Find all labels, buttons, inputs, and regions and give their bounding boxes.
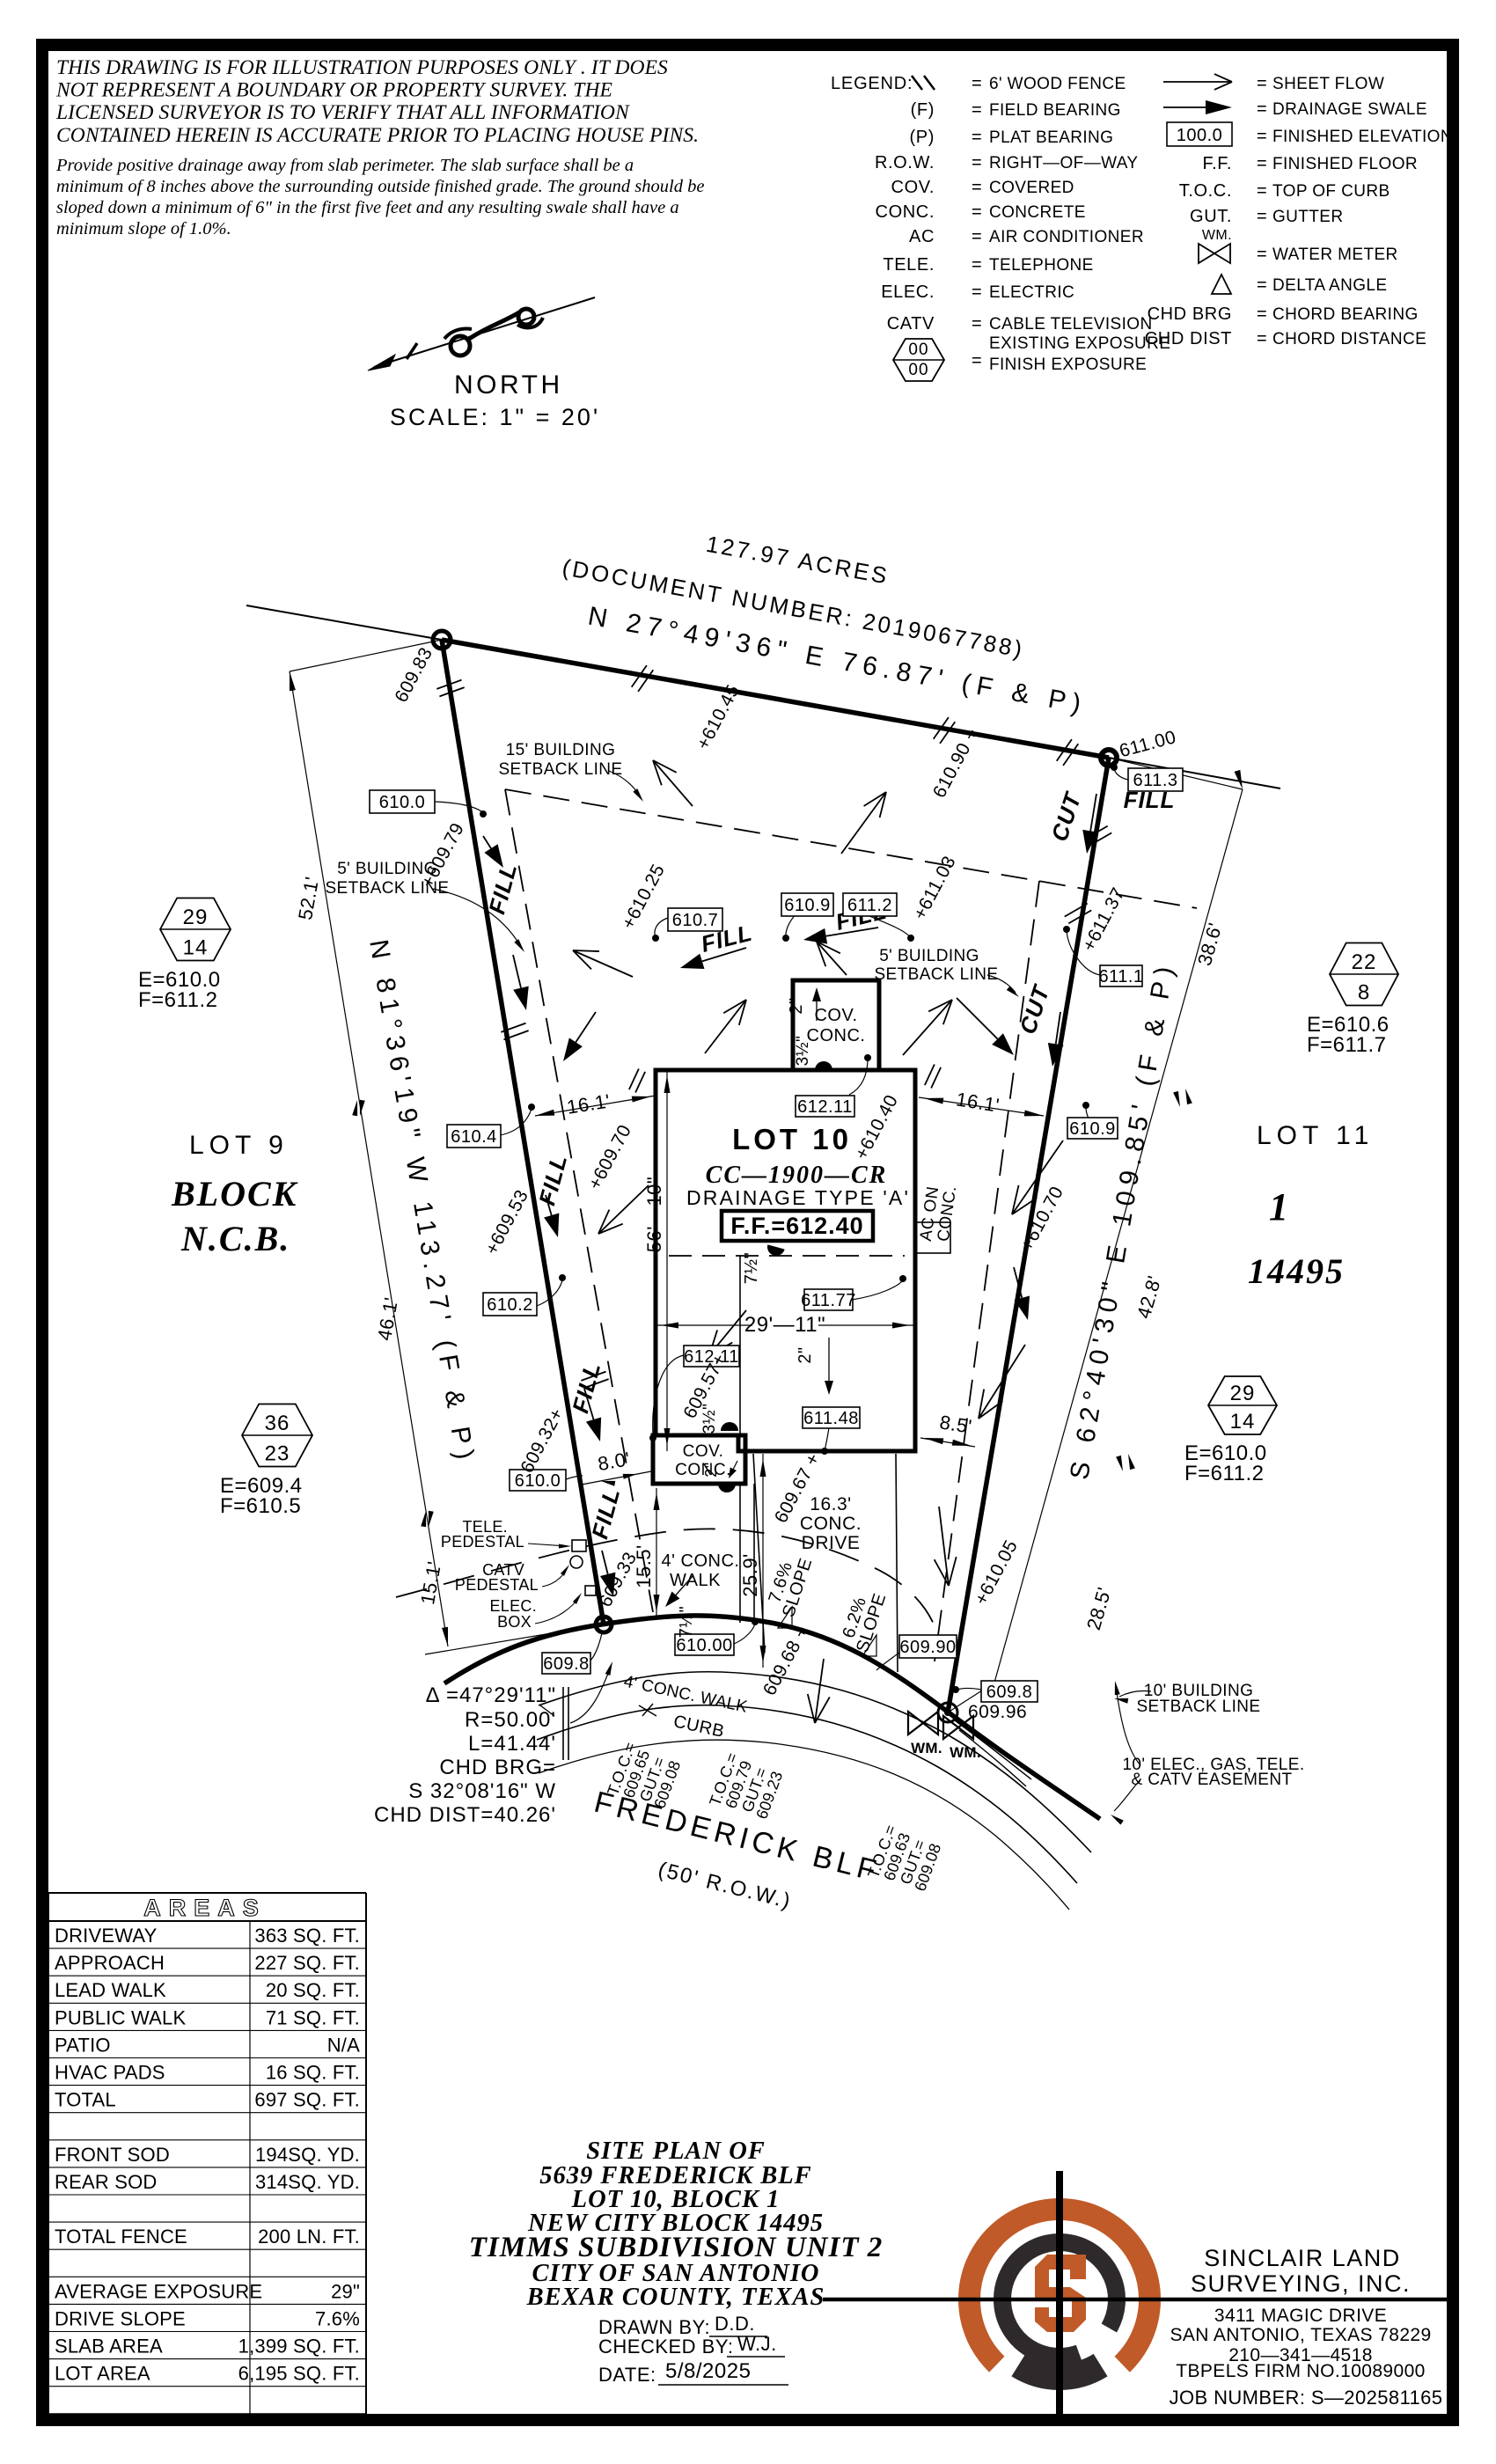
svg-text:610.9: 610.9: [784, 896, 831, 915]
svg-text:4' CONC.: 4' CONC.: [662, 1551, 740, 1571]
svg-text:CATV: CATV: [887, 314, 935, 334]
svg-text:TOP OF CURB: TOP OF CURB: [1272, 182, 1390, 201]
svg-text:23: 23: [265, 1442, 290, 1466]
svg-text:SURVEYING, INC.: SURVEYING, INC.: [1191, 2270, 1411, 2297]
svg-text:& CATV EASEMENT: & CATV EASEMENT: [1131, 1771, 1292, 1789]
svg-text:22: 22: [1352, 950, 1377, 974]
svg-text:PATIO: PATIO: [55, 2034, 111, 2056]
svg-text:SHEET FLOW: SHEET FLOW: [1272, 75, 1384, 93]
svg-text:LICENSED SURVEYOR IS TO VERIFY: LICENSED SURVEYOR IS TO VERIFY THAT ALL …: [55, 101, 630, 124]
svg-text:SETBACK LINE: SETBACK LINE: [325, 879, 449, 898]
svg-text:F=611.2: F=611.2: [1184, 1462, 1264, 1485]
svg-text:D.D.: D.D.: [715, 2313, 755, 2335]
svg-text:14: 14: [1230, 1410, 1256, 1434]
svg-text:TIMMS SUBDIVISION UNIT 2: TIMMS SUBDIVISION UNIT 2: [469, 2232, 884, 2263]
svg-text:609.90: 609.90: [899, 1638, 956, 1657]
svg-text:PEDESTAL: PEDESTAL: [441, 1533, 524, 1551]
svg-text:GUT.: GUT.: [1190, 207, 1232, 226]
svg-text:DELTA ANGLE: DELTA ANGLE: [1272, 276, 1387, 295]
svg-text:609.96: 609.96: [968, 1702, 1027, 1722]
svg-text:N.C.B.: N.C.B.: [180, 1219, 290, 1258]
svg-text:CONC.: CONC.: [800, 1514, 862, 1534]
svg-text:CHORD DISTANCE: CHORD DISTANCE: [1272, 330, 1426, 348]
svg-text:CHD BRG: CHD BRG: [1148, 304, 1232, 324]
svg-text:FINISHED ELEVATION: FINISHED ELEVATION: [1272, 128, 1453, 146]
svg-text:8: 8: [1358, 981, 1370, 1005]
svg-text:1: 1: [1269, 1185, 1290, 1228]
svg-text:DRIVE SLOPE: DRIVE SLOPE: [55, 2307, 186, 2329]
svg-text:36: 36: [265, 1412, 290, 1435]
svg-text:CONTAINED HEREIN IS ACCURATE P: CONTAINED HEREIN IS ACCURATE PRIOR TO PL…: [56, 124, 699, 147]
svg-text:WM.: WM.: [950, 1744, 981, 1761]
svg-text:(P): (P): [910, 128, 935, 147]
svg-text:=: =: [1257, 329, 1267, 348]
svg-text:WATER METER: WATER METER: [1272, 246, 1398, 264]
svg-text:CHD DIST=40.26': CHD DIST=40.26': [374, 1803, 556, 1827]
svg-text:14495: 14495: [1248, 1251, 1345, 1291]
svg-text:NOT REPRESENT A BOUNDARY OR PR: NOT REPRESENT A BOUNDARY OR PROPERTY SUR…: [55, 79, 612, 102]
svg-text:6,195 SQ. FT.: 6,195 SQ. FT.: [238, 2363, 360, 2385]
svg-text:194SQ. YD.: 194SQ. YD.: [255, 2144, 360, 2166]
svg-text:T.O.C.: T.O.C.: [1179, 181, 1232, 201]
svg-text:7½": 7½": [677, 1606, 696, 1638]
svg-text:L=41.44': L=41.44': [468, 1732, 556, 1756]
svg-text:SETBACK LINE: SETBACK LINE: [1136, 1698, 1260, 1716]
svg-text:610.2: 610.2: [487, 1295, 533, 1315]
svg-text:PUBLIC WALK: PUBLIC WALK: [55, 2006, 186, 2028]
svg-text:=: =: [1257, 99, 1267, 119]
svg-text:sloped down a minimum of 6" in: sloped down a minimum of 6" in the first…: [56, 198, 679, 217]
svg-text:SITE PLAN OF: SITE PLAN OF: [586, 2138, 766, 2165]
svg-text:29: 29: [1230, 1382, 1256, 1405]
svg-text:2": 2": [702, 1462, 720, 1477]
svg-text:=: =: [1257, 207, 1267, 226]
svg-text:7.6%: 7.6%: [315, 2307, 360, 2329]
svg-text:CONCRETE: CONCRETE: [989, 203, 1086, 222]
svg-text:6' WOOD FENCE: 6' WOOD FENCE: [989, 75, 1126, 93]
svg-text:JOB NUMBER: S—202581165: JOB NUMBER: S—202581165: [1170, 2387, 1443, 2409]
svg-text:F=611.7: F=611.7: [1307, 1033, 1386, 1057]
svg-text:612.11: 612.11: [797, 1097, 853, 1117]
svg-text:AIR CONDITIONER: AIR CONDITIONER: [989, 228, 1144, 246]
svg-text:=: =: [972, 74, 982, 93]
svg-text:=: =: [972, 282, 982, 302]
svg-text:N/A: N/A: [327, 2034, 360, 2056]
svg-text:FRONT SOD: FRONT SOD: [55, 2144, 170, 2166]
svg-text:CONC.: CONC.: [876, 202, 935, 222]
svg-text:2": 2": [787, 997, 806, 1014]
svg-text:LEGEND:: LEGEND:: [831, 74, 913, 93]
svg-text:COVERED: COVERED: [989, 179, 1074, 197]
svg-text:SINCLAIR LAND: SINCLAIR LAND: [1204, 2245, 1401, 2271]
svg-text:3411 MAGIC DRIVE: 3411 MAGIC DRIVE: [1214, 2306, 1387, 2326]
svg-text:BEXAR COUNTY, TEXAS: BEXAR COUNTY, TEXAS: [526, 2284, 825, 2311]
svg-text:NORTH: NORTH: [454, 370, 563, 400]
svg-text:RIGHT—OF—WAY: RIGHT—OF—WAY: [989, 154, 1138, 172]
svg-text:ELECTRIC: ELECTRIC: [989, 283, 1074, 302]
svg-text:LOT 11: LOT 11: [1257, 1121, 1374, 1150]
svg-text:1,399 SQ. FT.: 1,399 SQ. FT.: [238, 2336, 360, 2358]
svg-text:DRIVE: DRIVE: [802, 1533, 861, 1553]
svg-text:200 LN. FT.: 200 LN. FT.: [258, 2226, 360, 2248]
svg-text:AVERAGE EXPOSURE: AVERAGE EXPOSURE: [55, 2280, 262, 2302]
svg-text:DRAINAGE SWALE: DRAINAGE SWALE: [1272, 100, 1427, 119]
svg-text:THIS DRAWING IS FOR ILLUSTRATI: THIS DRAWING IS FOR ILLUSTRATION PURPOSE…: [56, 56, 668, 79]
svg-text:=: =: [972, 153, 982, 172]
svg-text:FINISH EXPOSURE: FINISH EXPOSURE: [989, 356, 1147, 374]
svg-text:610.0: 610.0: [379, 793, 426, 812]
svg-text:611.1: 611.1: [1098, 967, 1143, 986]
svg-text:20 SQ. FT.: 20 SQ. FT.: [266, 1979, 360, 2001]
svg-text:=: =: [1257, 154, 1267, 173]
svg-text:00: 00: [908, 341, 928, 359]
svg-text:7½": 7½": [742, 1252, 761, 1284]
svg-text:CHECKED BY:: CHECKED BY:: [598, 2336, 733, 2358]
svg-text:610.7: 610.7: [672, 911, 719, 930]
svg-text:BLOCK: BLOCK: [171, 1174, 298, 1214]
svg-text:CHD BRG=: CHD BRG=: [439, 1756, 556, 1779]
svg-text:AC: AC: [909, 227, 935, 246]
svg-text:FIELD BEARING: FIELD BEARING: [989, 101, 1121, 120]
svg-text:15' BUILDING: 15' BUILDING: [506, 741, 616, 759]
svg-text:=: =: [972, 227, 982, 246]
svg-text:LEAD WALK: LEAD WALK: [55, 1979, 166, 2001]
svg-text:=: =: [972, 314, 982, 334]
svg-text:SETBACK LINE: SETBACK LINE: [498, 760, 622, 779]
svg-text:TOTAL: TOTAL: [55, 2089, 116, 2111]
svg-text:TELEPHONE: TELEPHONE: [989, 256, 1094, 275]
svg-text:5' BUILDING: 5' BUILDING: [337, 860, 437, 878]
svg-text:CONC.: CONC.: [807, 1026, 866, 1045]
svg-text:609.8: 609.8: [543, 1654, 590, 1674]
svg-text:=: =: [1257, 181, 1267, 201]
svg-text:314SQ. YD.: 314SQ. YD.: [255, 2171, 360, 2193]
svg-text:=: =: [972, 255, 982, 275]
svg-text:TELE.: TELE.: [883, 255, 935, 275]
svg-text:611.48: 611.48: [803, 1409, 859, 1428]
svg-text:BOX: BOX: [497, 1613, 532, 1631]
svg-text:=: =: [1257, 304, 1267, 324]
svg-text:S 32°08'16" W: S 32°08'16" W: [408, 1779, 556, 1803]
svg-text:minimum of 8 inches above the: minimum of 8 inches above the surroundin…: [56, 177, 704, 196]
svg-text:R.O.W.: R.O.W.: [875, 153, 935, 172]
svg-text:SETBACK LINE: SETBACK LINE: [874, 965, 998, 984]
svg-text:DRIVEWAY: DRIVEWAY: [55, 1925, 158, 1947]
svg-text:W.J.: W.J.: [737, 2333, 777, 2355]
svg-text:2": 2": [796, 1346, 815, 1363]
svg-text:29: 29: [183, 906, 209, 929]
svg-text:=: =: [1257, 74, 1267, 93]
svg-text:=: =: [1257, 245, 1267, 264]
svg-text:CABLE TELEVISION: CABLE TELEVISION: [989, 315, 1153, 334]
svg-text:=: =: [972, 100, 982, 120]
svg-text:CHORD BEARING: CHORD BEARING: [1272, 305, 1419, 324]
svg-text:ELEC.: ELEC.: [489, 1597, 537, 1615]
svg-text:LOT 10: LOT 10: [732, 1123, 852, 1155]
svg-text:F=610.5: F=610.5: [220, 1494, 301, 1518]
svg-text:00: 00: [908, 361, 928, 379]
svg-text:F.F.=612.40: F.F.=612.40: [730, 1213, 863, 1239]
svg-text:609.8: 609.8: [986, 1683, 1033, 1702]
svg-text:697 SQ. FT.: 697 SQ. FT.: [254, 2089, 360, 2111]
svg-text:TOTAL FENCE: TOTAL FENCE: [55, 2226, 187, 2248]
svg-text:=: =: [972, 178, 982, 197]
svg-text:F.F.: F.F.: [1202, 154, 1232, 173]
svg-text:COV.: COV.: [891, 178, 935, 197]
svg-text:=: =: [1257, 127, 1267, 146]
svg-text:COV.: COV.: [683, 1442, 724, 1461]
svg-text:5/8/2025: 5/8/2025: [665, 2359, 751, 2383]
svg-text:minimum slope of 1.0%.: minimum slope of 1.0%.: [56, 219, 231, 238]
svg-text:610.9: 610.9: [1069, 1119, 1116, 1139]
svg-text:610.00: 610.00: [676, 1636, 732, 1655]
svg-text:3½": 3½": [794, 1036, 812, 1067]
svg-text:AREAS: AREAS: [143, 1895, 267, 1921]
svg-text:=: =: [972, 351, 982, 370]
svg-text:WM.: WM.: [1202, 228, 1232, 243]
svg-text:F=611.2: F=611.2: [138, 988, 217, 1012]
svg-text:3½": 3½": [700, 1404, 719, 1434]
svg-text:EXISTING EXPOSURE: EXISTING EXPOSURE: [989, 334, 1170, 353]
svg-text:Δ =47°29'11": Δ =47°29'11": [426, 1683, 556, 1707]
svg-text:ELEC.: ELEC.: [881, 282, 935, 302]
svg-text:DATE:: DATE:: [598, 2364, 656, 2386]
svg-text:COV.: COV.: [814, 1006, 857, 1025]
svg-text:WALK: WALK: [670, 1571, 721, 1590]
svg-text:610.4: 610.4: [451, 1127, 497, 1147]
svg-text:GUTTER: GUTTER: [1272, 208, 1344, 226]
svg-text:227 SQ. FT.: 227 SQ. FT.: [254, 1952, 360, 1974]
svg-text:HVAC PADS: HVAC PADS: [55, 2062, 165, 2084]
svg-text:611.2: 611.2: [847, 896, 892, 915]
svg-text:SCALE: 1" = 20': SCALE: 1" = 20': [390, 404, 600, 430]
svg-text:=: =: [972, 128, 982, 147]
svg-text:APPROACH: APPROACH: [55, 1952, 165, 1974]
svg-text:FINISHED FLOOR: FINISHED FLOOR: [1272, 155, 1418, 173]
svg-text:Provide positive drainage away: Provide positive drainage away from slab…: [55, 156, 634, 175]
svg-text:REAR SOD: REAR SOD: [55, 2171, 158, 2193]
svg-text:=: =: [1257, 275, 1267, 295]
svg-text:29'—11": 29'—11": [744, 1313, 825, 1337]
svg-text:WM.: WM.: [911, 1740, 942, 1756]
svg-text:LOT 9: LOT 9: [189, 1131, 289, 1160]
svg-text:71 SQ. FT.: 71 SQ. FT.: [266, 2006, 360, 2028]
svg-text:611.3: 611.3: [1133, 771, 1177, 790]
svg-text:=: =: [972, 202, 982, 222]
svg-text:SLAB AREA: SLAB AREA: [55, 2336, 163, 2358]
svg-text:611.77: 611.77: [801, 1291, 856, 1310]
svg-text:TBPELS FIRM NO.10089000: TBPELS FIRM NO.10089000: [1176, 2361, 1426, 2381]
svg-text:PLAT BEARING: PLAT BEARING: [989, 128, 1113, 147]
svg-text:PEDESTAL: PEDESTAL: [455, 1576, 539, 1594]
svg-text:363 SQ. FT.: 363 SQ. FT.: [254, 1925, 360, 1947]
svg-text:16.3': 16.3': [810, 1494, 851, 1514]
svg-text:25.9': 25.9': [739, 1553, 761, 1597]
svg-text:LOT AREA: LOT AREA: [55, 2363, 150, 2385]
svg-text:(F): (F): [911, 100, 935, 120]
svg-text:CC—1900—CR: CC—1900—CR: [706, 1162, 888, 1189]
svg-text:610.0: 610.0: [515, 1471, 561, 1491]
svg-text:100.0: 100.0: [1177, 126, 1223, 145]
svg-text:R=50.00': R=50.00': [465, 1708, 556, 1732]
svg-text:5' BUILDING: 5' BUILDING: [879, 947, 979, 965]
svg-text:29": 29": [331, 2280, 360, 2302]
svg-text:DRAINAGE TYPE 'A': DRAINAGE TYPE 'A': [686, 1186, 910, 1209]
svg-text:16 SQ. FT.: 16 SQ. FT.: [266, 2062, 360, 2084]
svg-text:CHD DIST: CHD DIST: [1145, 329, 1232, 348]
svg-text:14: 14: [183, 936, 209, 960]
svg-text:SAN ANTONIO, TEXAS 78229: SAN ANTONIO, TEXAS 78229: [1170, 2325, 1431, 2345]
